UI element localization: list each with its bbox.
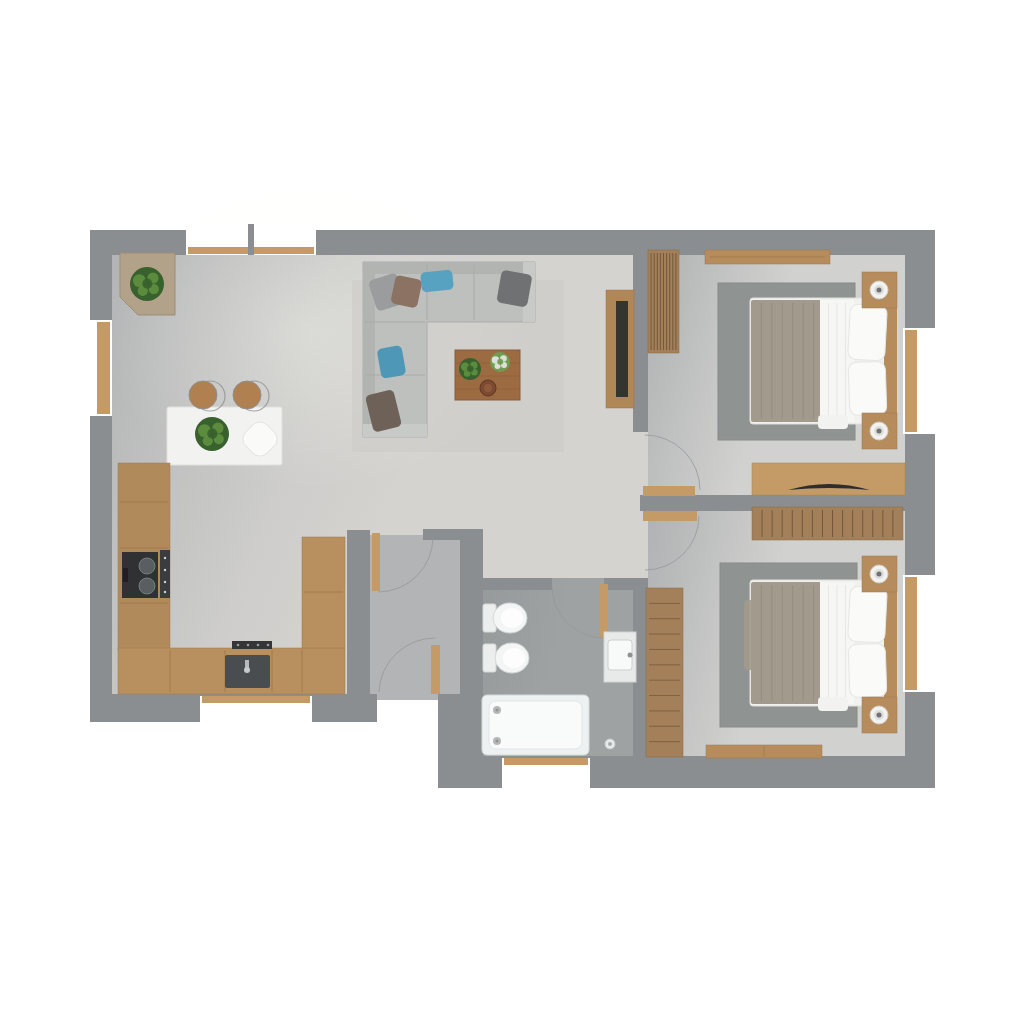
coffee-table-bowl-inner: [484, 384, 492, 392]
vestibule-door-leaf: [372, 533, 380, 591]
bed2-blanket: [751, 582, 824, 704]
front-door-leaf: [431, 645, 440, 694]
wall-vestibule-top: [423, 529, 483, 540]
hob-knob-3: [257, 644, 260, 647]
bed1-pillow-top: [848, 304, 888, 361]
wall-bathroom-top-east: [604, 578, 635, 590]
window-bedroom2-frame: [905, 577, 917, 690]
wall-bathroom-stub: [472, 578, 552, 590]
bed2-sheet-drape: [818, 697, 848, 711]
front-door-threshold: [377, 700, 438, 788]
kitchen-oven-handle: [123, 568, 128, 582]
wall-bathroom-west-upper: [460, 529, 483, 756]
bed2-lamp-top-bulb: [876, 571, 881, 576]
spice-dot-3: [164, 581, 166, 583]
coffee-table-flowers-leaf: [497, 359, 503, 365]
shelf-plant-leaf: [142, 279, 152, 289]
bedroom1-dresser: [752, 463, 905, 495]
bed2-lamp-bottom-bulb: [876, 712, 881, 717]
window-kitchen-frame: [202, 696, 310, 703]
kitchen-faucet-stem: [245, 660, 249, 668]
spice-dot-1: [164, 557, 166, 559]
pillow-blue-top: [420, 269, 454, 292]
bed1-lamp-bottom-bulb: [876, 428, 881, 433]
bathtub-inner: [489, 701, 582, 749]
wall-kitchen-east: [347, 530, 370, 694]
window-bedroom1-frame: [905, 330, 917, 432]
spice-dot-2: [164, 569, 166, 571]
wall-right: [905, 230, 935, 788]
toilet-brush-top: [608, 742, 612, 746]
kitchen-oven-glass-1: [139, 558, 155, 574]
bedroom2-wardrobe-tall: [646, 588, 683, 757]
wall-living-bedroom1-divider: [633, 255, 648, 432]
coffee-table-plant-leaf: [467, 365, 474, 372]
kitchen-oven-glass-2: [139, 578, 155, 594]
bidet-bowl-inner: [503, 648, 525, 668]
bidet-tank: [483, 644, 496, 672]
bed1-blanket: [751, 300, 824, 422]
tv-screen: [616, 301, 628, 397]
hob-knob-1: [237, 644, 240, 647]
bedroom2-door-leaf: [643, 511, 697, 521]
bed2-pillow-bottom: [848, 643, 887, 697]
stool-2: [233, 381, 261, 409]
bathtub-faucet-1-dot: [496, 709, 499, 712]
pillow-blue-side: [377, 345, 407, 379]
floor-plan-screenshot: [0, 0, 1024, 1024]
kitchen-tall-cabinet: [302, 537, 345, 648]
bed1-lamp-top-bulb: [876, 287, 881, 292]
floor-plan-rendering: [0, 0, 1024, 1024]
hob-knob-4: [267, 644, 270, 647]
dining-table-plant-leaf: [207, 429, 217, 439]
sink-faucet: [628, 653, 633, 658]
pillow-darkgray: [496, 270, 532, 308]
scene-layer: [82, 170, 936, 788]
window-top-mullion: [248, 224, 254, 255]
kitchen-faucet: [244, 667, 250, 673]
bathtub-faucet-2-dot: [496, 740, 499, 743]
bed1-sheet-drape: [818, 415, 848, 429]
stool-1: [189, 381, 217, 409]
spice-dot-4: [164, 591, 166, 593]
bed2-pillow-top: [848, 586, 888, 643]
hob-knob-2: [247, 644, 250, 647]
window-left-frame: [97, 322, 110, 414]
bed1-pillow-bottom: [848, 361, 887, 415]
bathroom-door-leaf: [600, 584, 608, 638]
toilet-bowl-inner: [501, 608, 523, 628]
wall-bathroom-west-lower: [438, 694, 460, 756]
bedroom2-wardrobe-top: [752, 507, 903, 540]
bedroom1-door-leaf: [643, 486, 695, 496]
window-bathroom-frame: [504, 758, 588, 765]
